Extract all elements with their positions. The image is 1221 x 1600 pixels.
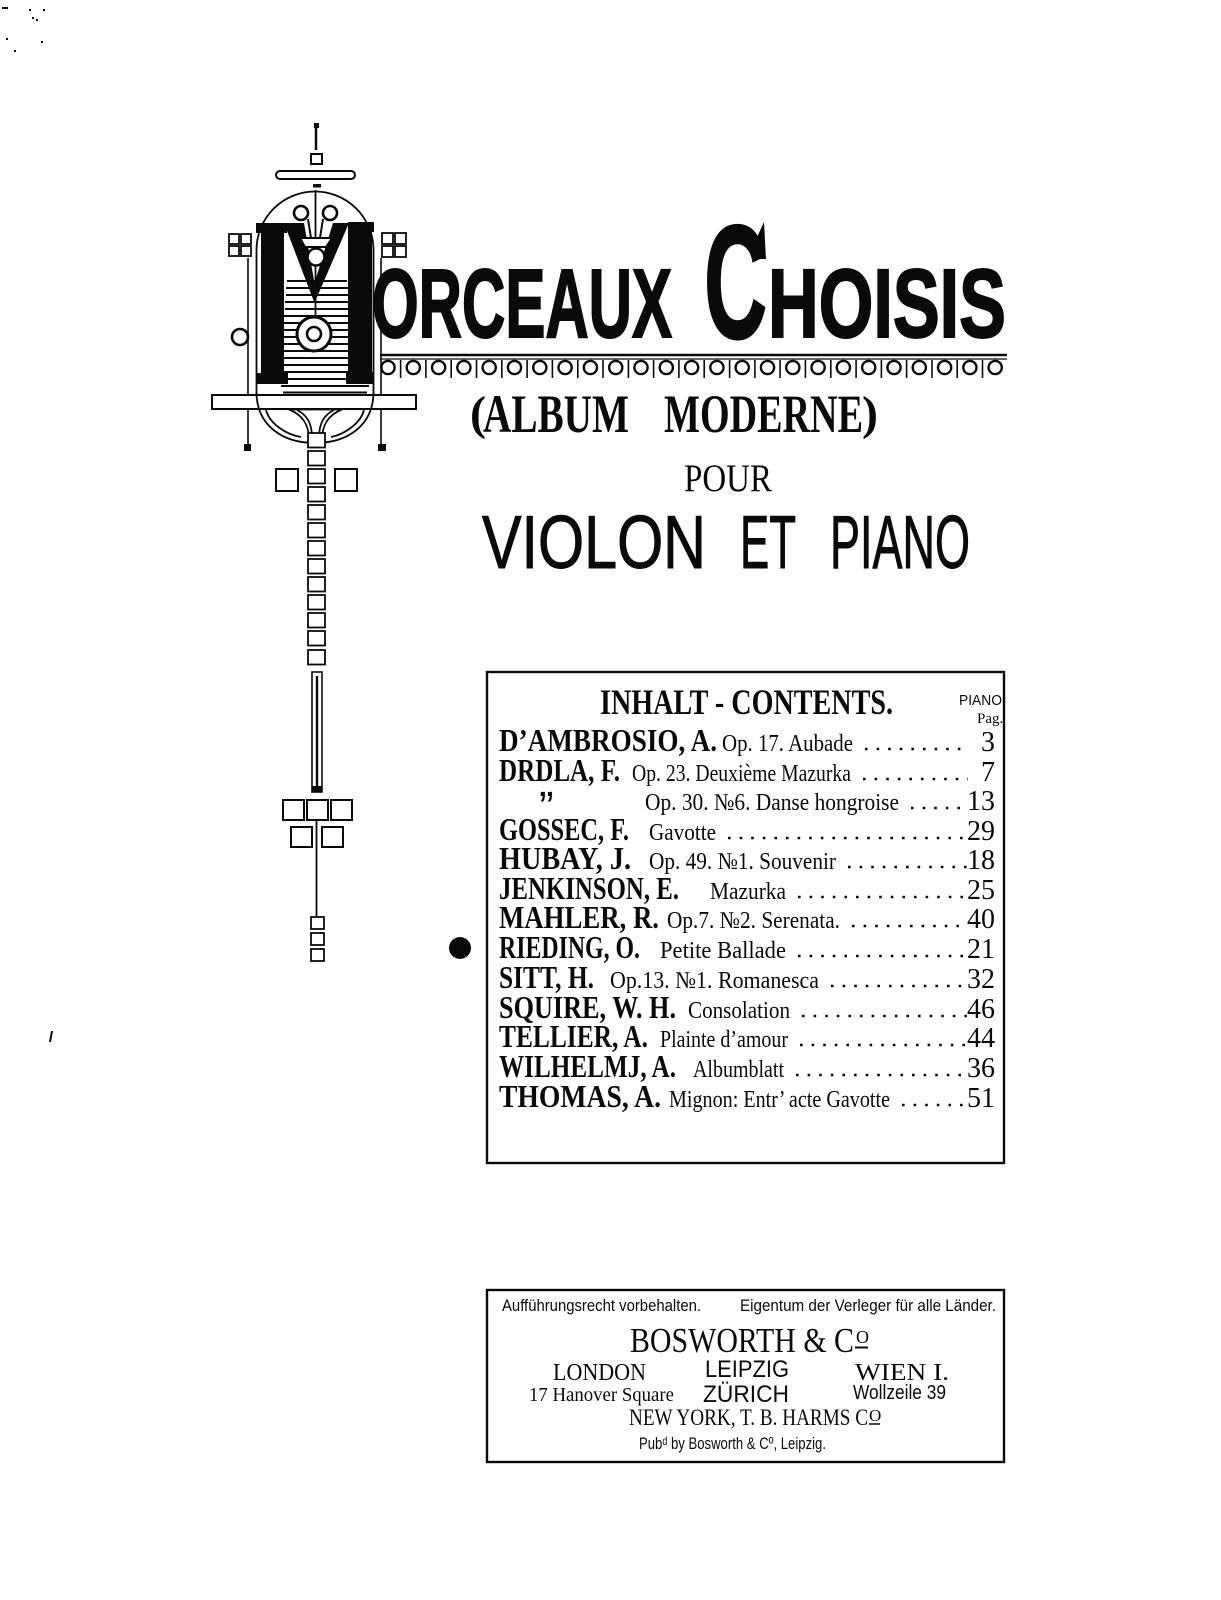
svg-text:3: 3 [981, 727, 995, 758]
svg-text:29: 29 [967, 816, 995, 847]
svg-text:Op.7. №2. Serenata.: Op.7. №2. Serenata. [667, 908, 840, 934]
svg-text:Op. 17. Aubade: Op. 17. Aubade [722, 731, 853, 757]
svg-text:44: 44 [967, 1023, 995, 1054]
svg-text:51: 51 [967, 1083, 995, 1114]
svg-text:O: O [869, 1406, 881, 1425]
svg-text:ALBUM: ALBUM [483, 384, 629, 444]
svg-text:MODERNE: MODERNE [664, 384, 863, 444]
svg-text:17 Hanover Square: 17 Hanover Square [529, 1384, 674, 1406]
svg-text:NEW YORK, T. B. HARMS C: NEW YORK, T. B. HARMS C [629, 1405, 868, 1430]
svg-text:Op. 30. №6. Danse hongroise: Op. 30. №6. Danse hongroise [645, 790, 899, 816]
svg-text:Op. 23. Deuxième Mazurka: Op. 23. Deuxième Mazurka [632, 761, 851, 787]
svg-text:LEIPZIG: LEIPZIG [705, 1356, 789, 1383]
svg-text:32: 32 [967, 964, 995, 995]
svg-text:Consolation: Consolation [688, 998, 790, 1024]
svg-text:Mazurka: Mazurka [710, 879, 786, 905]
svg-text:Mignon: Entr’ acte Gavotte: Mignon: Entr’ acte Gavotte [669, 1087, 890, 1113]
svg-text:Pag.: Pag. [977, 711, 1003, 727]
svg-text:Petite Ballade: Petite Ballade [660, 938, 786, 964]
svg-text:18: 18 [967, 845, 995, 876]
svg-text:THOMAS, A.: THOMAS, A. [499, 1078, 661, 1114]
svg-text:Gavotte: Gavotte [649, 820, 716, 846]
svg-text:LONDON: LONDON [553, 1360, 646, 1386]
svg-text:INHALT - CONTENTS.: INHALT - CONTENTS. [600, 682, 893, 722]
svg-text:Albumblatt: Albumblatt [693, 1057, 784, 1083]
svg-text:DRDLA, F.: DRDLA, F. [499, 752, 620, 788]
svg-text:46: 46 [967, 994, 995, 1025]
svg-text:O: O [856, 1327, 869, 1347]
svg-text:Wollzeile 39: Wollzeile 39 [853, 1382, 946, 1404]
svg-text:36: 36 [967, 1053, 995, 1084]
svg-text:): ) [862, 387, 878, 440]
svg-text:C: C [704, 191, 767, 373]
svg-text:ORCEAUX: ORCEAUX [372, 249, 672, 358]
svg-text:VIOLON: VIOLON [482, 500, 706, 584]
svg-text:PIANO: PIANO [959, 692, 1002, 709]
svg-text:ZÜRICH: ZÜRICH [703, 1381, 789, 1408]
svg-text:7: 7 [981, 757, 995, 788]
svg-text:40: 40 [967, 904, 995, 935]
svg-text:Plainte d’amour: Plainte d’amour [660, 1027, 788, 1053]
svg-text:Aufführungsrecht vorbehalten.: Aufführungsrecht vorbehalten. [502, 1296, 701, 1315]
svg-text:21: 21 [967, 934, 995, 965]
svg-text:Eigentum der Verleger für alle: Eigentum der Verleger für alle Länder. [740, 1296, 996, 1315]
svg-text:25: 25 [967, 875, 995, 906]
svg-text:POUR: POUR [684, 457, 772, 500]
svg-text:HOISIS: HOISIS [768, 249, 1006, 358]
svg-text:BOSWORTH & C: BOSWORTH & C [630, 1321, 854, 1360]
svg-text:Pubᵈ by Bosworth & Cº, Leipzig: Pubᵈ by Bosworth & Cº, Leipzig. [639, 1434, 826, 1453]
svg-text:13: 13 [967, 786, 995, 817]
svg-text:PIANO: PIANO [830, 500, 970, 584]
svg-text:ET: ET [740, 500, 796, 584]
